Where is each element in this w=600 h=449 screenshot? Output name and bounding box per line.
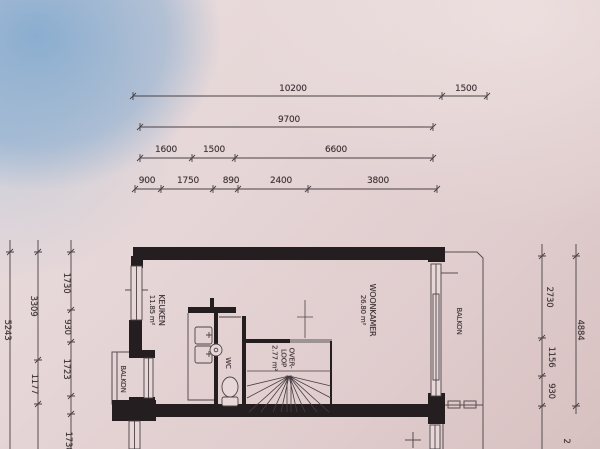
- dim-top-seg8: 3800: [367, 176, 389, 186]
- dim-top-seg6: 890: [223, 176, 240, 186]
- room-label-balkon-left: BALKON: [119, 365, 127, 392]
- wc-name: WC: [224, 357, 232, 368]
- dim-top-inner: 9700: [278, 115, 300, 125]
- dim-right-overall: 4884: [575, 320, 585, 341]
- dim-left-seg3: 1730: [61, 273, 71, 294]
- dim-right-seg3: 930: [546, 383, 556, 399]
- dimension-lines-right: [538, 244, 580, 449]
- dim-top-balcony: 1500: [455, 84, 477, 94]
- dim-right-seg1: 2730: [544, 287, 554, 308]
- dim-right-partial: 2: [561, 438, 571, 443]
- dim-right-seg2: 1156: [546, 347, 556, 368]
- floorplan-photo: 10200 1500 9700 1600 1500 6600 900 1750 …: [0, 0, 600, 449]
- room-label-keuken: KEUKEN 11.85 m²: [148, 294, 166, 325]
- dim-top-seg2: 1500: [203, 145, 225, 155]
- balkon-right-name: BALKON: [455, 307, 463, 334]
- dim-left-seg2: 1177: [29, 374, 39, 395]
- door-marker: [297, 300, 313, 338]
- keuken-area: 11.85 m²: [148, 295, 156, 325]
- dim-left-overall: 5243: [2, 320, 12, 341]
- balkon-left-name: BALKON: [119, 365, 127, 392]
- dim-top-seg3: 6600: [325, 145, 347, 155]
- room-label-overloop: OVER- LOOP 2.77 m²: [270, 345, 295, 371]
- dim-top-seg4: 900: [139, 176, 156, 186]
- room-label-woonkamer: WOONKAMER 26.80 m²: [359, 284, 377, 337]
- woonkamer-area: 26.80 m²: [359, 295, 367, 325]
- woonkamer-name: WOONKAMER: [367, 284, 377, 337]
- dim-left-seg1: 3309: [28, 296, 38, 317]
- room-label-wc: WC: [224, 357, 232, 368]
- overloop-area: 2.77 m²: [270, 345, 278, 371]
- plan-linework: [0, 0, 600, 449]
- dim-top-seg1: 1600: [155, 145, 177, 155]
- dim-top-seg7: 2400: [270, 176, 292, 186]
- dimension-lines-left: [6, 240, 75, 449]
- dim-left-seg4: 930: [62, 319, 72, 335]
- balcony-outlines: [112, 252, 483, 449]
- dim-top-seg5: 1750: [177, 176, 199, 186]
- walls: [112, 247, 445, 424]
- overloop-name-line2: LOOP: [279, 349, 287, 367]
- keuken-name: KEUKEN: [156, 294, 166, 325]
- room-label-balkon-right: BALKON: [455, 307, 463, 334]
- dim-left-seg5: 1723: [61, 359, 71, 380]
- dim-left-seg6: 1730: [63, 432, 73, 449]
- overloop-name-line1: OVER-: [287, 348, 295, 369]
- dim-top-overall: 10200: [279, 84, 307, 94]
